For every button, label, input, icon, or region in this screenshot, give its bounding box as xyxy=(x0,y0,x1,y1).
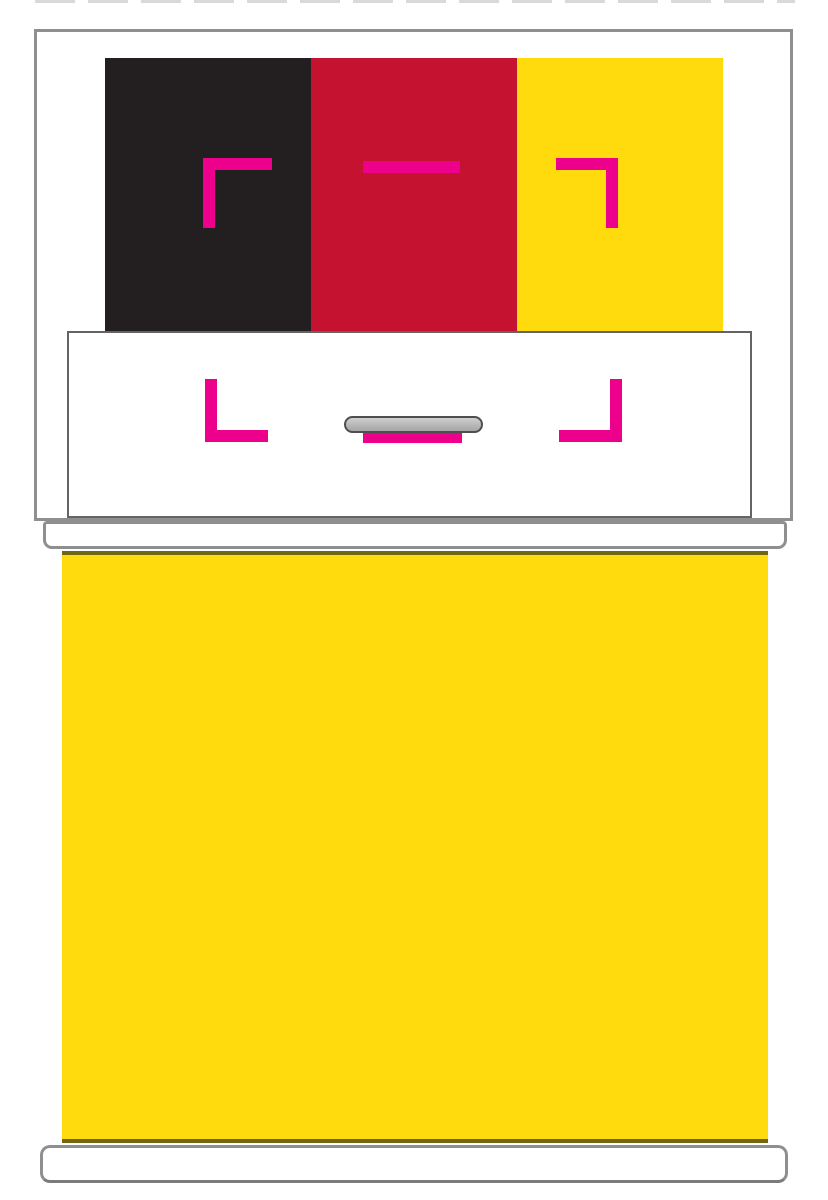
handle-slot-icon xyxy=(344,416,483,433)
bottom-base-bar xyxy=(40,1145,788,1183)
flag-stripe-yellow xyxy=(517,58,723,331)
crop-mark-bottom-right-icon xyxy=(559,379,622,442)
crop-mark-top-right-icon xyxy=(556,158,618,228)
crop-mark-top-left-icon xyxy=(203,158,272,228)
crop-mark-top-center-icon xyxy=(363,161,460,173)
cassette-base-ledge xyxy=(43,521,787,549)
dashed-cut-line-icon xyxy=(35,0,795,3)
flag-print-area xyxy=(105,58,723,331)
banner-body xyxy=(62,551,768,1143)
product-mockup xyxy=(0,0,828,1200)
crop-mark-bottom-left-icon xyxy=(205,379,268,442)
flag-stripe-red xyxy=(311,58,517,331)
